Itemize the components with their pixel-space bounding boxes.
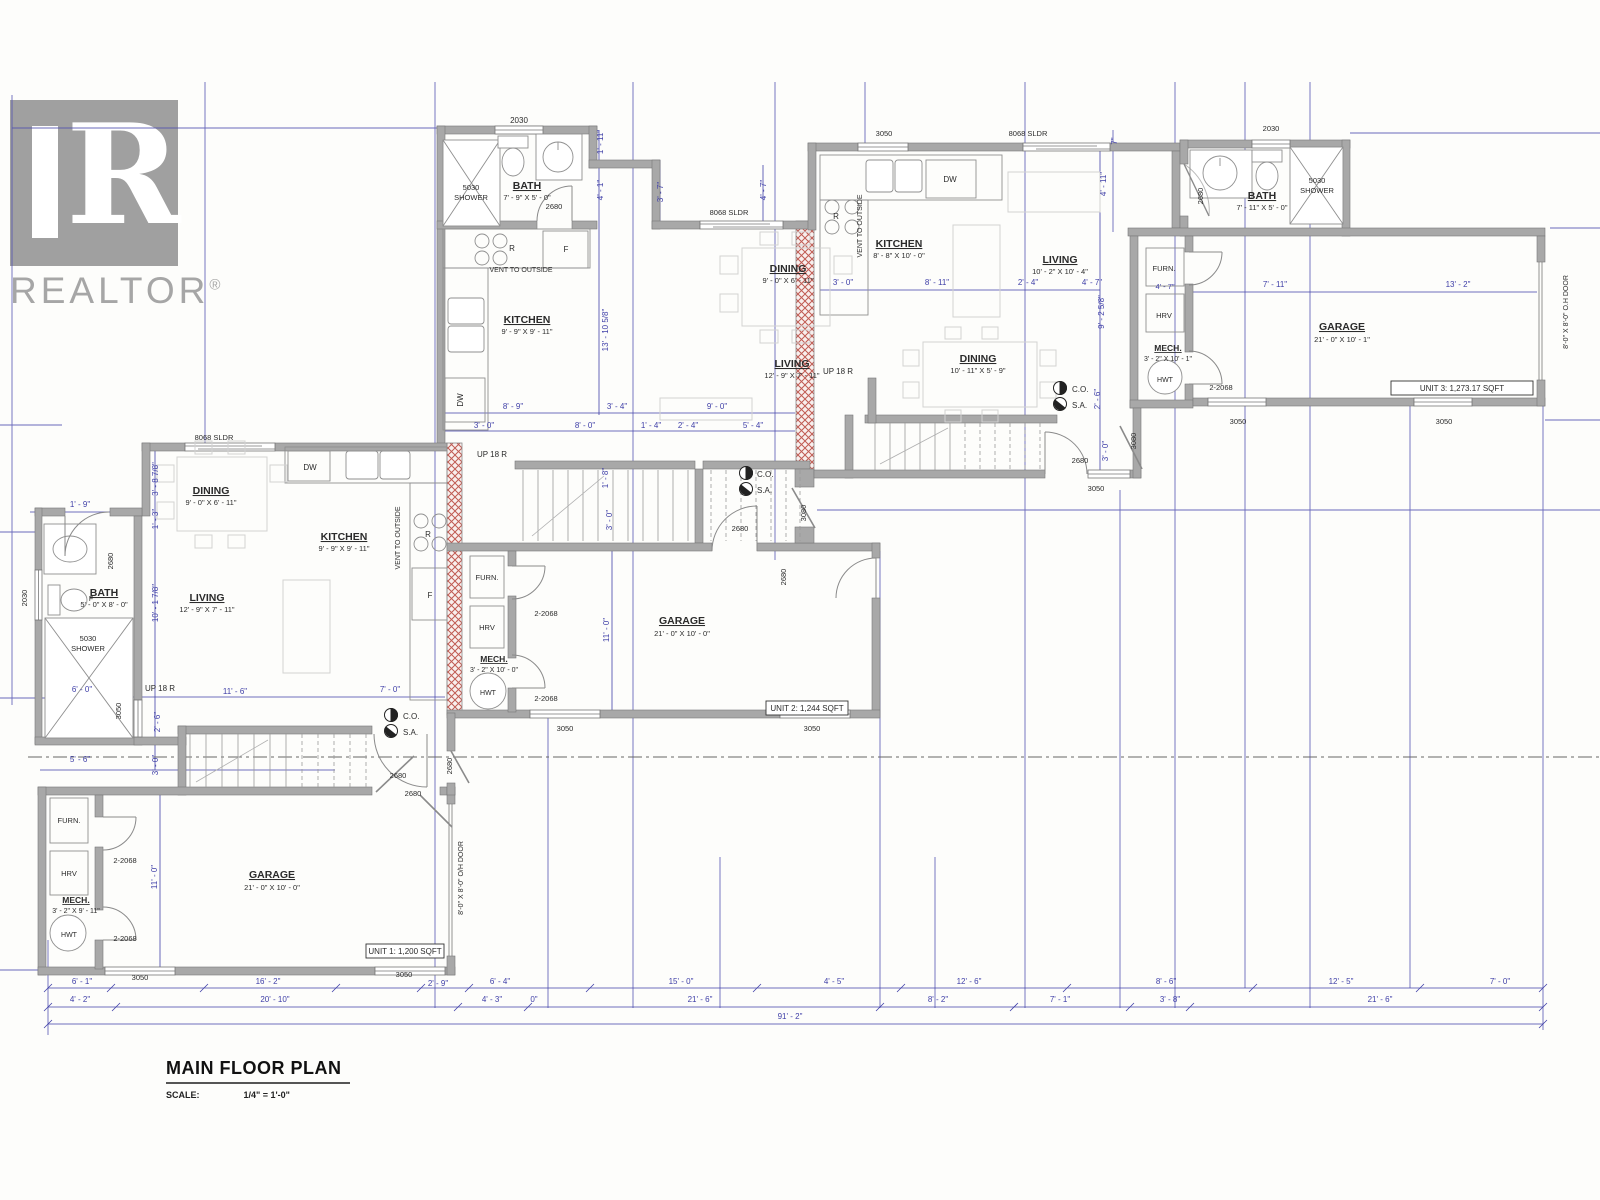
u2-sa-label: S.A. [757, 486, 772, 495]
annotation-text-120: 6' - 0" [72, 685, 93, 694]
scale-label: SCALE: [166, 1090, 200, 1100]
u1-mech-label: MECH. [62, 895, 89, 905]
annotation-text-123: 2' - 6" [153, 712, 162, 733]
u3-living-label: LIVING [1042, 254, 1077, 266]
u1-bath-label: BATH [90, 587, 118, 599]
u3-shower-tag: 5030 [1309, 176, 1326, 185]
u3-co-icon [1054, 382, 1067, 395]
annotation-text-75: 3080 [1129, 433, 1138, 450]
annotation-text-156: 7' - 0" [1490, 977, 1511, 986]
u3-co-label: C.O. [1072, 385, 1088, 394]
annotation-text-2: SHOWER [454, 193, 488, 202]
annotation-text-129: 3' - 0" [151, 755, 160, 776]
doors [65, 164, 1222, 940]
annotation-text-12: 8' - 9" [503, 402, 524, 411]
annotation-text-17: 1' - 4" [641, 421, 662, 430]
annotation-text-66: 9' - 2 5/8" [1097, 295, 1106, 329]
annotation-text-85: 2680 [1196, 188, 1205, 205]
annotation-text-161: 21' - 6" [688, 995, 713, 1004]
annotation-text-152: 4' - 5" [824, 977, 845, 986]
annotation-text-151: 15' - 0" [669, 977, 694, 986]
annotation-text-128: 5' - 6" [70, 755, 91, 764]
annotation-text-48: 3050 [557, 724, 574, 733]
annotation-text-146: 3050 [396, 970, 413, 979]
title-underline [166, 1082, 350, 1084]
annotation-text-18: 2' - 4" [678, 421, 699, 430]
annotation-text-61: 10' - 2" X 10' - 4" [1032, 267, 1088, 276]
u3-mech-label: MECH. [1154, 343, 1181, 353]
fixtures [44, 134, 1343, 951]
annotation-text-162: 8' - 2" [928, 995, 949, 1004]
annotation-text-113: 5' - 0" X 8' - 0" [80, 600, 128, 609]
u2-vent-note: VENT TO OUTSIDE [489, 267, 552, 274]
annotation-text-145: 3050 [132, 973, 149, 982]
annotation-text-81: 3' - 2" X 10' - 1" [1144, 356, 1193, 363]
annotation-text-164: 3' - 8" [1160, 995, 1181, 1004]
u2-dw-tag: DW [456, 393, 465, 407]
annotation-text-149: 2' - 9" [428, 979, 449, 988]
annotation-text-14: 9' - 0" [707, 402, 728, 411]
annotation-text-101: 9' - 0" X 6' - 11" [186, 498, 237, 507]
floor-plan-canvas: 20305030SHOWERBATH7' - 9" X 5' - 0"2680R… [0, 0, 1600, 1200]
u1-kitchen-sink [346, 451, 410, 479]
title-block: MAIN FLOOR PLAN SCALE:1/4" = 1'-0" [166, 1058, 426, 1100]
annotation-text-78: 4' - 7" [1155, 282, 1174, 291]
annotation-text-111: 2680 [106, 553, 115, 570]
annotation-text-132: 2680 [445, 758, 454, 775]
u3-stairs-up-label: UP 18 R [823, 367, 853, 376]
annotation-text-54: 4' - 11" [1099, 172, 1108, 196]
annotation-text-35: 2680 [732, 524, 749, 533]
unit3-area-label: UNIT 3: 1,273.17 SQFT [1420, 384, 1504, 393]
annotation-text-163: 7' - 1" [1050, 995, 1071, 1004]
u2-range [475, 234, 507, 265]
annotation-text-62: 3' - 0" [833, 278, 854, 287]
u1-living-label: LIVING [189, 592, 224, 604]
annotation-text-44: 11' - 0" [602, 618, 611, 642]
u3-sa-icon [1054, 398, 1067, 411]
annotation-text-41: 3' - 2" X 10' - 0" [470, 667, 519, 674]
u2-hwt-label: HWT [480, 690, 497, 697]
annotation-text-96: 3050 [1436, 417, 1453, 426]
annotation-text-32: 3' - 0" [605, 510, 614, 531]
u1-garage-label: GARAGE [249, 869, 295, 881]
annotation-text-166: 91' - 2" [778, 1012, 803, 1021]
annotation-text-24: 4' - 7" [759, 180, 768, 201]
annotation-text-150: 6' - 4" [490, 977, 511, 986]
annotation-text-110: 2030 [20, 590, 29, 607]
annotation-text-46: 21' - 0" X 10' - 0" [654, 629, 710, 638]
annotation-text-84: 2030 [1263, 124, 1280, 133]
annotation-text-19: 5' - 4" [743, 421, 764, 430]
annotation-text-59: 8' - 8" X 10' - 0" [873, 251, 925, 260]
u1-sa-label: S.A. [403, 728, 418, 737]
annotation-text-76: 3050 [1088, 484, 1105, 493]
annotation-text-38: 2-2068 [534, 609, 557, 618]
u1-hrv-label: HRV [61, 869, 77, 878]
annotation-text-43: 2-2068 [534, 694, 557, 703]
annotation-text-27: 9' - 0" X 6' - 11" [763, 276, 814, 285]
u3-range-tag: R [833, 212, 839, 221]
u3-hrv-label: HRV [1156, 311, 1172, 320]
annotation-text-68: 10' - 11" X 5' - 9" [950, 366, 1005, 375]
annotation-text-122: 3050 [114, 703, 123, 720]
u2-co-label: C.O. [757, 470, 773, 479]
floor-plan-page: { "watermark": {"brand": "REALTOR", "reg… [0, 0, 1600, 1200]
annotation-text-90: 7' - 11" [1263, 280, 1287, 289]
u3-dw-tag: DW [943, 175, 957, 184]
annotation-text-105: 9' - 9" X 9' - 11" [319, 544, 370, 553]
annotation-text-51: 3050 [876, 129, 893, 138]
drawing-title: MAIN FLOOR PLAN [166, 1058, 426, 1079]
u3-bath-label: BATH [1248, 190, 1276, 202]
u1-range-tag: R [425, 530, 431, 539]
annotation-text-99: 3' - 8 7/8" [151, 462, 160, 496]
u2-co-icon [740, 467, 753, 480]
unit1-ohdoor-note: 8'-0" X 8'-0" O/H DOOR [458, 841, 465, 915]
u1-co-label: C.O. [403, 712, 419, 721]
u1-bath-sink [44, 524, 96, 574]
u3-kitchen-sink [866, 160, 922, 192]
annotation-text-64: 2' - 4" [1018, 278, 1039, 287]
annotation-text-49: 3050 [804, 724, 821, 733]
u2-living-label: LIVING [774, 358, 809, 370]
u3-sldr-tag: 8068 SLDR [1009, 129, 1048, 138]
u1-hwt-label: HWT [61, 932, 78, 939]
u2-shower-tag: 5030 [463, 183, 480, 192]
u2-dining-label: DINING [770, 263, 807, 275]
annotation-text-15: 3' - 0" [474, 421, 495, 430]
u1-kitchen-label: KITCHEN [321, 531, 368, 543]
annotation-text-119: 12' - 9" X 7' - 11" [179, 605, 234, 614]
u3-sa-label: S.A. [1072, 401, 1087, 410]
scale-value: 1/4" = 1'-0" [244, 1090, 290, 1100]
u2-hrv-label: HRV [479, 623, 495, 632]
u1-stairs-up-label: UP 18 R [145, 684, 175, 693]
annotation-text-125: 7' - 0" [380, 685, 401, 694]
u3-vent-note: VENT TO OUTSIDE [857, 194, 864, 257]
annotation-text-159: 4' - 3" [482, 995, 503, 1004]
u2-bath-sink [536, 134, 582, 180]
u3-garage-label: GARAGE [1319, 321, 1365, 333]
u1-vent-note: VENT TO OUTSIDE [395, 506, 402, 569]
annotation-text-5: 2680 [546, 202, 563, 211]
annotation-text-72: 2' - 6" [1093, 389, 1102, 410]
annotation-text-109: 1' - 9" [70, 500, 91, 509]
annotation-text-142: 21' - 0" X 10' - 0" [244, 883, 300, 892]
annotation-text-13: 3' - 4" [607, 402, 628, 411]
annotation-text-165: 21' - 6" [1368, 995, 1393, 1004]
annotation-text-10: 9' - 9" X 9' - 11" [502, 327, 553, 336]
u2-sldr-tag: 8068 SLDR [710, 208, 749, 217]
annotation-text-139: 2-2068 [113, 934, 136, 943]
u1-dw-tag: DW [303, 463, 317, 472]
u2-bath-window-tag: 2030 [510, 116, 528, 125]
annotation-text-53: 7" [1110, 137, 1119, 144]
annotation-text-130: 2680 [390, 771, 407, 780]
annotation-text-91: 13' - 2" [1446, 280, 1471, 289]
annotation-text-117: 10' - 1 7/8" [151, 584, 160, 622]
u1-kitchen-counter [285, 447, 447, 700]
u2-fridge-tag: F [564, 245, 569, 254]
furniture [157, 172, 1100, 673]
annotation-text-73: 2680 [1072, 456, 1089, 465]
u3-range [825, 200, 859, 234]
u3-hwt-label: HWT [1157, 377, 1174, 384]
annotation-text-131: 2680 [405, 789, 422, 798]
annotation-text-16: 8' - 0" [575, 421, 596, 430]
annotation-text-22: 13' - 10 5/8" [601, 309, 610, 352]
u2-bath-label: BATH [513, 180, 541, 192]
annotation-text-93: 21' - 0" X 10' - 1" [1314, 335, 1370, 344]
unit3-ohdoor-note: 8'-0" X 8'-0" O.H DOOR [1563, 275, 1570, 349]
u1-sa-icon [385, 725, 398, 738]
annotation-text-155: 12' - 5" [1329, 977, 1354, 986]
labels-layer: 20305030SHOWERBATH7' - 9" X 5' - 0"2680R… [20, 116, 1570, 1021]
u2-mech-label: MECH. [480, 654, 507, 664]
annotation-text-153: 12' - 6" [957, 977, 982, 986]
u1-furnace-label: FURN. [58, 816, 81, 825]
annotation-text-74: 3' - 0" [1101, 441, 1110, 462]
u1-shower-tag: 5030 [80, 634, 97, 643]
u3-furnace-label: FURN. [1153, 264, 1176, 273]
u1-sldr-tag: 8068 SLDR [195, 433, 234, 442]
annotation-text-103: 1' - 3" [151, 509, 160, 530]
u2-kitchen-sink [448, 298, 484, 352]
annotation-text-147: 6' - 1" [72, 977, 93, 986]
u2-kitchen-label: KITCHEN [504, 314, 551, 326]
u1-dining-label: DINING [193, 485, 230, 497]
annotation-text-65: 4' - 7" [1082, 278, 1103, 287]
annotation-text-158: 20' - 10" [260, 995, 289, 1004]
annotation-text-83: 2-2068 [1209, 383, 1232, 392]
u2-range-tag: R [509, 244, 515, 253]
annotation-text-87: 7' - 11" X 5' - 0" [1237, 203, 1288, 212]
annotation-text-31: 1' - 8" [601, 468, 610, 489]
annotation-text-63: 8' - 11" [925, 278, 949, 287]
u3-dining-label: DINING [960, 353, 997, 365]
u3-kitchen-label: KITCHEN [876, 238, 923, 250]
annotation-text-95: 3050 [1230, 417, 1247, 426]
annotation-text-134: 2-2068 [113, 856, 136, 865]
u2-dishwasher [445, 378, 485, 422]
annotation-text-137: 3' - 2" X 9' - 11" [52, 908, 100, 915]
annotation-text-157: 4' - 2" [70, 995, 91, 1004]
annotation-text-154: 8' - 6" [1156, 977, 1177, 986]
annotation-text-89: SHOWER [1300, 186, 1334, 195]
annotation-text-116: SHOWER [71, 644, 105, 653]
u1-fridge-tag: F [428, 591, 433, 600]
u2-stairs-up-label: UP 18 R [477, 450, 507, 459]
u2-garage-label: GARAGE [659, 615, 705, 627]
u3-toilet [1252, 150, 1282, 190]
annotation-text-160: 0" [530, 995, 537, 1004]
annotation-text-21: 4' - 1" [596, 180, 605, 201]
annotation-text-140: 11' - 0" [150, 865, 159, 889]
unit2-area-label: UNIT 2: 1,244 SQFT [770, 704, 843, 713]
u2-furnace-label: FURN. [476, 573, 499, 582]
annotation-text-23: 3' - 7" [656, 182, 665, 203]
annotation-text-4: 7' - 9" X 5' - 0" [503, 193, 551, 202]
u2-toilet [498, 136, 528, 176]
annotation-text-20: 1' - 11" [596, 130, 605, 154]
u2-sa-icon [740, 483, 753, 496]
annotation-text-114: F [89, 596, 93, 603]
annotation-text-124: 11' - 6" [223, 687, 247, 696]
annotation-text-36: 3080 [799, 505, 808, 522]
unit1-area-label: UNIT 1: 1,200 SQFT [368, 947, 441, 956]
annotation-text-29: 12' - 9" X 7' - 11" [764, 371, 819, 380]
annotation-text-148: 16' - 2" [256, 977, 281, 986]
annotation-text-50: 2680 [779, 569, 788, 586]
u1-co-icon [385, 709, 398, 722]
